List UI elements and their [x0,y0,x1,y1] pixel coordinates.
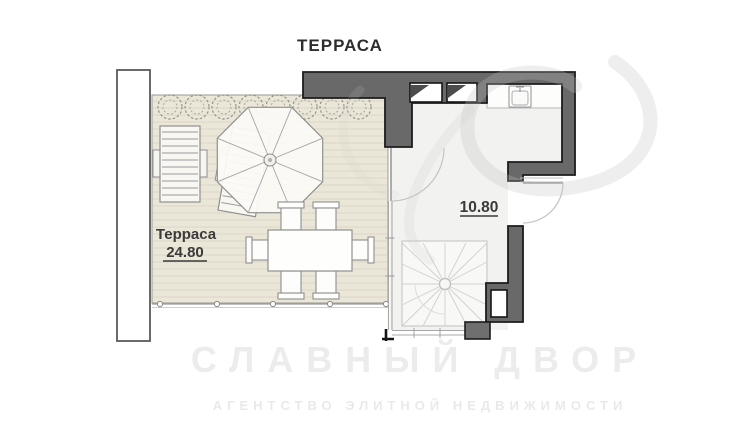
watermark-line-2: АГЕНТСТВО ЭЛИТНОЙ НЕДВИЖИМОСТИ [213,398,628,413]
railing-post [214,301,219,306]
floorplan-image: ТЕРРАСА Терраса 24.80 10.80 СЛАВНЫЙ ДВОР… [0,0,740,444]
dining-chair [278,202,304,230]
wall-shaft-niche [491,290,507,317]
dining-chair [278,271,304,299]
dining-chair [350,237,374,263]
room-label: 10.80 [460,199,499,216]
watermark-text: СЛАВНЫЙ ДВОР АГЕНТСТВО ЭЛИТНОЙ НЕДВИЖИМО… [191,338,649,413]
parasol-umbrella [217,107,322,212]
watermark-line-1: СЛАВНЫЙ ДВОР [191,338,649,380]
terrace-area-value: 24.80 [166,244,204,261]
railing-post [157,301,162,306]
railing-post [327,301,332,306]
stair-center-pole [440,279,451,290]
dining-chair [246,237,270,263]
sun-lounger-1 [153,126,207,202]
kitchen-counter [487,84,562,108]
spiral-staircase [402,241,487,326]
kitchen-sink [509,86,531,107]
window-niche-1 [410,83,442,102]
railing-post [270,301,275,306]
railing-post [383,301,388,306]
plan-title: ТЕРРАСА [297,36,383,55]
lounger-frame [160,126,200,202]
room-area-value: 10.80 [460,199,499,216]
terrace-name: Терраса [156,226,217,243]
dining-table [268,230,352,271]
dining-chair [313,202,339,230]
side-wall-column [117,70,150,341]
wall-stub [465,322,490,339]
umbrella-pole-center [268,158,272,162]
dining-chair [313,271,339,299]
